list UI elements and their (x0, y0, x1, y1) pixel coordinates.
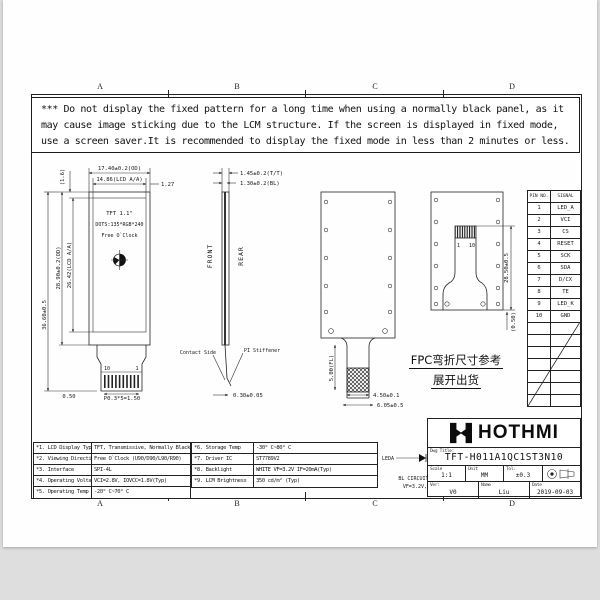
zone-tick (305, 492, 306, 501)
dim-fpc-end-width: 6.05±0.5 (377, 403, 404, 409)
projection-symbol-icon (545, 467, 579, 481)
date-value: 2019-09-03 (530, 489, 580, 496)
tolerance-cell: Tol. ±0.3 (504, 466, 543, 481)
pin-signal: TE (551, 287, 580, 298)
zone-letter-top-c: C (369, 82, 381, 92)
unit-value: MM (466, 472, 503, 479)
fpc-note-line-1: FPC弯折尺寸参考 (409, 353, 504, 369)
pin-signal: D/CX (551, 275, 580, 286)
spec-label: *5. Operating Temp (34, 487, 92, 498)
pin-signal: VCI (551, 215, 580, 226)
spec-value: ST7789V2 (254, 454, 377, 464)
title-block-row-3: Scale 1:1 Unit MM Tol. ±0.3 (428, 465, 580, 481)
part-number: TFT-H011A1QC1ST3N10 (428, 452, 580, 463)
side-view-dimensions: 1.45±0.2(T/T) 1.30±0.2(BL) Contact Side … (180, 168, 283, 399)
dim-bent-length: 28.50±0.5 (504, 253, 510, 283)
pin-row-4: 4RESET (528, 239, 580, 251)
pin-no: 7 (528, 275, 551, 286)
spec-value: -30° C~80° C (254, 443, 377, 453)
dim-stiffener-width: 4.50±0.1 (373, 393, 400, 399)
pin-no-header: PIN NO. (528, 191, 551, 202)
spec-value: WHITE VF=3.2V IF=20mA(Typ) (254, 465, 377, 475)
spec-row: *2. Viewing DirectionFree O`Clock (U90/D… (34, 454, 190, 465)
drawing-sheet: A B C D A B C D *** Do not display the f… (3, 0, 597, 547)
version-value: V0 (428, 489, 478, 496)
pin-row-empty (528, 323, 580, 335)
pin-row-empty (528, 359, 580, 371)
oclock-indicator-icon (111, 250, 128, 270)
title-block-row-4: Ver: V0 Name Liu Date 2019-09-03 (428, 481, 580, 498)
zone-letter-bottom-d: D (506, 499, 518, 509)
dim-aa-height: 26.42(LCD A/A) (67, 242, 73, 288)
dim-pad-width: 0.50 (62, 394, 75, 400)
scale-cell: Scale 1:1 (428, 466, 466, 481)
hothmi-logo-icon (449, 422, 473, 444)
title-block: HOTHMI Dwg Title: TFT-H011A1QC1ST3N10 Sc… (427, 418, 581, 497)
pin-no: 3 (528, 227, 551, 238)
pin-no: 5 (528, 251, 551, 262)
rear-pin1-label: 1 (457, 243, 460, 249)
rear-flat-mount-holes (324, 200, 392, 333)
dim-gap-right: 1.27 (161, 182, 174, 188)
pi-stiffener-label: PI Stiffener (244, 348, 280, 354)
led-symbol-icon (419, 454, 426, 462)
brand-row: HOTHMI (428, 419, 580, 447)
warning-note-box: *** Do not display the fixed pattern for… (31, 97, 580, 153)
warning-line-2: may cause image sticking due to the LCM … (41, 118, 579, 134)
spec-value: SPI-4L (92, 465, 190, 475)
pin-table: PIN NO. SIGNAL 1LED_A 2VCI 3CS 4RESET 5S… (527, 190, 581, 407)
pin-signal: LED_A (551, 203, 580, 214)
spec-row: *5. Operating Temp-20° C~70° C (34, 487, 190, 498)
pin-row-1: 1LED_A (528, 203, 580, 215)
spec-value: -20° C~70° C (92, 487, 190, 498)
spec-row: *4. Operating VoltageVCI=2.8V, IOVCC=1.8… (34, 476, 190, 487)
pin-row-7: 7D/CX (528, 275, 580, 287)
name-label: Name (481, 483, 491, 488)
name-value: Liu (479, 489, 529, 496)
name-cell: Name Liu (479, 482, 530, 498)
fpc-note: FPC弯折尺寸参考 展开出货 (395, 349, 517, 389)
projection-cell (543, 466, 580, 481)
unit-cell: Unit MM (466, 466, 504, 481)
spec-label: *2. Viewing Direction (34, 454, 92, 464)
pin-no: 10 (528, 311, 551, 322)
rear-unfolded-view: 5.00(FL) 4.50±0.1 6.05±0.5 (321, 192, 404, 409)
pin-no: 8 (528, 287, 551, 298)
pin-signal: LED_K (551, 299, 580, 310)
drawing-title-row: Dwg Title: TFT-H011A1QC1ST3N10 (428, 447, 580, 465)
front-view-dots-label: DOTS:135*RGB*240 (95, 222, 143, 228)
front-pin10-label: 10 (104, 366, 110, 372)
spec-row: *6. Storage Temp-30° C~80° C (192, 443, 377, 454)
dim-fpc-length: 5.00(FL) (329, 355, 335, 382)
pin-no: 9 (528, 299, 551, 310)
spec-label: *3. Interface (34, 465, 92, 475)
fpc-note-line-2: 展开出货 (431, 373, 481, 389)
spec-label: *6. Storage Temp (192, 443, 254, 453)
side-front-label: FRONT (206, 244, 214, 269)
pin-no: 4 (528, 239, 551, 250)
pin-table-header: PIN NO. SIGNAL (528, 191, 580, 203)
front-pin1-label: 1 (135, 366, 138, 372)
front-view-size-label: TFT 1.1" (106, 211, 133, 217)
dim-od-width: 17.40±0.2(OD) (98, 166, 141, 172)
bl-leda-label: LEDA (382, 456, 394, 462)
rear-bent-mount-holes (434, 198, 500, 306)
front-view: TFT 1.1" DOTS:135*RGB*240 Free O`Clock (42, 166, 174, 402)
spec-label: *8. Backlight (192, 465, 254, 475)
spec-value: TFT, Transmissive, Normally Black (92, 443, 190, 453)
front-fpc-tail: 10 1 (97, 345, 146, 391)
zone-letter-bottom-a: A (94, 499, 106, 509)
spec-row: *9. LCM Brightness350 cd/m² (Typ) (192, 476, 377, 487)
pin-signal: RESET (551, 239, 580, 250)
contact-side-label: Contact Side (180, 350, 216, 356)
zone-letter-top-d: D (506, 82, 518, 92)
zone-letter-bottom-c: C (369, 499, 381, 509)
pin-signal: GND (551, 311, 580, 322)
version-label: Ver: (430, 483, 440, 488)
side-rear-label: REAR (237, 246, 245, 266)
dim-bent-gap: (0.50) (511, 312, 517, 332)
dim-bl-thickness: 1.30±0.2(BL) (240, 181, 280, 187)
warning-line-3: use a screen saver.It is recommended to … (41, 134, 579, 150)
spec-label: *1. LCD Display Type (34, 443, 92, 453)
warning-line-1: *** Do not display the fixed pattern for… (41, 102, 579, 118)
pin-no: 6 (528, 263, 551, 274)
pin-signal: SCK (551, 251, 580, 262)
dim-pin-pitch: P0.3*5=1.50 (104, 396, 140, 402)
spec-row: *8. BacklightWHITE VF=3.2V IF=20mA(Typ) (192, 465, 377, 476)
pin-no: 2 (528, 215, 551, 226)
zone-letter-top-a: A (94, 82, 106, 92)
pin-row-empty (528, 347, 580, 359)
pin-row-3: 3CS (528, 227, 580, 239)
side-view: FRONT REAR 1.45±0.2(T/T) 1.30±0.2(BL) Co… (180, 168, 283, 399)
scale-value: 1:1 (428, 472, 465, 479)
dim-od-height: 28.90±0.2(OD) (56, 246, 62, 289)
screenshot-canvas: A B C D A B C D *** Do not display the f… (0, 0, 600, 600)
date-label: Date (532, 483, 542, 488)
spec-row: *3. InterfaceSPI-4L (34, 465, 190, 476)
pin-row-empty (528, 383, 580, 395)
dim-gap-top: (1.6) (60, 169, 66, 186)
signal-header: SIGNAL (551, 191, 580, 202)
spec-label: *7. Driver IC (192, 454, 254, 464)
spec-table-left: *1. LCD Display TypeTFT, Transmissive, N… (33, 442, 191, 499)
pin-row-8: 8TE (528, 287, 580, 299)
spec-row: *7. Driver ICST7789V2 (192, 454, 377, 465)
zone-letter-top-b: B (231, 82, 243, 92)
pin-row-empty (528, 395, 580, 407)
dim-aa-width: 14.86(LCD A/A) (96, 177, 142, 183)
pin-row-5: 5SCK (528, 251, 580, 263)
spec-table-right: *6. Storage Temp-30° C~80° C *7. Driver … (191, 442, 378, 488)
front-view-clock-label: Free O`Clock (101, 233, 137, 239)
brand-name: HOTHMI (478, 422, 559, 444)
pin-no: 1 (528, 203, 551, 214)
pin-row-empty (528, 371, 580, 383)
spec-label: *4. Operating Voltage (34, 476, 92, 486)
dim-total-height: 36.60±0.5 (42, 300, 48, 330)
spec-value: 350 cd/m² (Typ) (254, 476, 377, 487)
dim-total-thickness: 1.45±0.2(T/T) (240, 171, 283, 177)
pin-row-2: 2VCI (528, 215, 580, 227)
spec-label: *9. LCM Brightness (192, 476, 254, 487)
rear-pin10-label: 10 (469, 243, 475, 249)
pin-row-9: 9LED_K (528, 299, 580, 311)
tolerance-value: ±0.3 (504, 472, 542, 479)
pin-row-6: 6SDA (528, 263, 580, 275)
zone-letter-bottom-b: B (231, 499, 243, 509)
spec-value: VCI=2.8V, IOVCC=1.8V(Typ) (92, 476, 190, 486)
spec-row: *1. LCD Display TypeTFT, Transmissive, N… (34, 443, 190, 454)
rear-folded-view: 1 10 28.50±0.5 (0.50) (431, 192, 517, 332)
mechanical-drawing: TFT 1.1" DOTS:135*RGB*240 Free O`Clock (31, 153, 581, 442)
dim-tip-thickness: 0.30±0.05 (233, 393, 263, 399)
pin-signal: SDA (551, 263, 580, 274)
rear-bent-dimensions: 28.50±0.5 (0.50) (476, 226, 517, 332)
version-cell: Ver: V0 (428, 482, 479, 498)
pin-row-10: 10GND (528, 311, 580, 323)
date-cell: Date 2019-09-03 (530, 482, 580, 498)
pin-row-empty (528, 335, 580, 347)
pin-signal: CS (551, 227, 580, 238)
spec-value: Free O`Clock (U90/D90/L90/R90) (92, 454, 190, 464)
